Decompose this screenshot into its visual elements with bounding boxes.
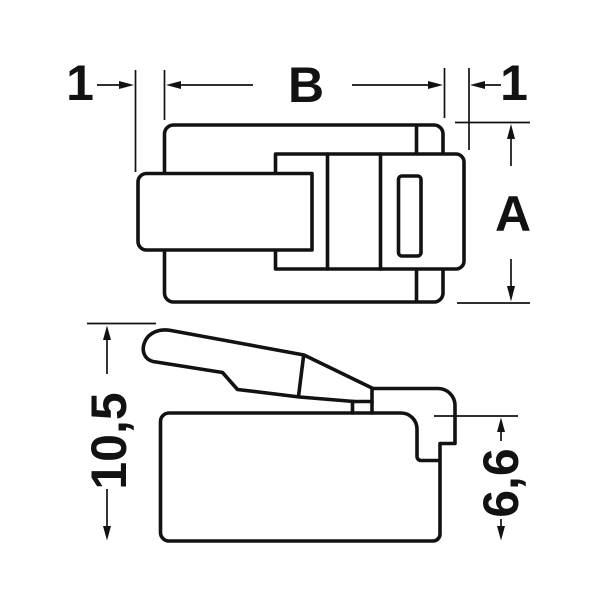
dimension-body-width: A — [455, 123, 531, 304]
dimension-front-height: 6,6 — [434, 416, 529, 541]
technical-drawing-canvas: 1 B 1 A — [0, 0, 600, 600]
dim-label-a: A — [495, 186, 531, 242]
dim-label-6-6: 6,6 — [473, 448, 529, 518]
dim-label-10-5: 10,5 — [81, 392, 137, 489]
dim-label-b: B — [288, 57, 324, 113]
top-view-drawing: 1 B 1 A — [66, 55, 531, 303]
side-view-body-outline — [161, 389, 456, 542]
top-view-latch-slot — [399, 176, 422, 256]
side-view-drawing: 10,5 6,6 — [81, 324, 529, 542]
connector-drawing-svg: 1 B 1 A — [0, 0, 600, 600]
arrowhead-right-icon — [428, 81, 443, 89]
dimension-body-length: B — [166, 57, 445, 118]
side-view-latch-lever — [143, 330, 373, 402]
arrowhead-up-icon — [103, 326, 111, 341]
dim-label-left-1: 1 — [66, 55, 94, 111]
arrowhead-down-icon — [103, 526, 111, 541]
dim-label-right-1: 1 — [500, 55, 528, 111]
top-view-cable-boot — [138, 174, 312, 251]
arrowhead-right-icon — [119, 81, 134, 89]
dimension-right-offset: 1 — [469, 55, 528, 150]
arrowhead-up-icon — [497, 418, 505, 433]
arrowhead-left-icon — [470, 81, 485, 89]
arrowhead-down-icon — [507, 286, 515, 302]
arrowhead-down-icon — [497, 526, 505, 541]
arrowhead-left-icon — [166, 81, 181, 89]
side-view-latch-hinge-mark — [299, 357, 304, 397]
arrowhead-up-icon — [507, 124, 515, 139]
dimension-left-offset: 1 — [66, 55, 164, 172]
